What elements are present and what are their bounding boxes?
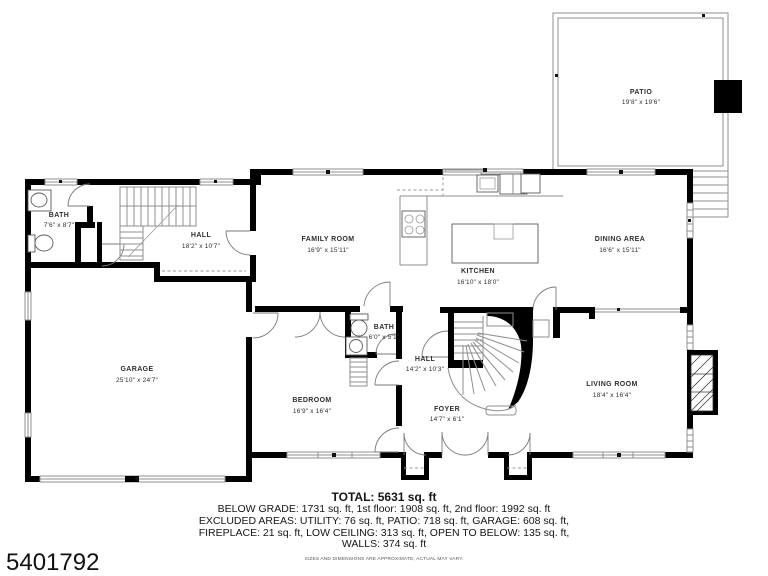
kitchen-fixtures [397, 174, 563, 265]
room-label-kitchen: KITCHEN [461, 268, 495, 275]
room-dims-dining-area: 16'6" x 15'11" [599, 247, 641, 254]
listing-id: 5401792 [6, 549, 99, 576]
floor-plan-svg: PATIO 19'8" x 19'6" BATH 7'6" x 8'7" HAL… [0, 0, 768, 490]
bath-upper-fixtures [28, 190, 53, 252]
room-label-bedroom: BEDROOM [292, 397, 331, 404]
half-wall [595, 309, 680, 312]
room-dims-hall-lower: 14'2" x 10'3" [406, 366, 445, 373]
patio-steps [693, 171, 728, 217]
disclaimer-text: SIZES AND DIMENSIONS ARE APPROXIMATE, AC… [77, 557, 691, 562]
fireplace [687, 350, 718, 415]
room-dims-patio: 19'8" x 19'6" [622, 99, 661, 106]
room-dims-living-room: 18'4" x 16'4" [593, 392, 632, 399]
room-label-foyer: FOYER [434, 406, 460, 413]
room-dims-foyer: 14'7" x 6'1" [430, 416, 465, 423]
room-dims-bath-lower: 6'0" x 5'1" [369, 334, 400, 341]
basement-stairs [350, 358, 367, 386]
area-line-4: WALLS: 374 sq. ft [0, 539, 768, 551]
floor-plan-page: PATIO 19'8" x 19'6" BATH 7'6" x 8'7" HAL… [0, 0, 768, 576]
room-label-bath-lower: BATH [374, 324, 395, 331]
room-dims-hall-upper: 18'2" x 10'7" [182, 243, 221, 250]
area-line-2: EXCLUDED AREAS: UTILITY: 76 sq. ft, PATI… [0, 516, 768, 528]
room-dims-bath-upper: 7'6" x 8'7" [44, 222, 75, 229]
room-label-living-room: LIVING ROOM [586, 381, 637, 388]
room-label-bath-upper: BATH [49, 212, 70, 219]
area-summary: TOTAL: 5631 sq. ft BELOW GRADE: 1731 sq.… [0, 491, 768, 551]
staircase-curved [448, 307, 549, 415]
room-dims-garage: 25'10" x 24'7" [116, 377, 159, 384]
room-label-patio: PATIO [630, 89, 653, 96]
room-dims-bedroom: 16'9" x 16'4" [293, 408, 332, 415]
room-dims-kitchen: 16'10" x 18'0" [457, 279, 500, 286]
room-label-hall-upper: HALL [191, 232, 212, 239]
room-dims-family-room: 16'9" x 15'11" [307, 247, 349, 254]
room-label-hall-lower: HALL [415, 356, 436, 363]
room-label-family-room: FAMILY ROOM [301, 236, 354, 243]
room-label-garage: GARAGE [120, 366, 153, 373]
room-label-dining-area: DINING AREA [595, 236, 645, 243]
